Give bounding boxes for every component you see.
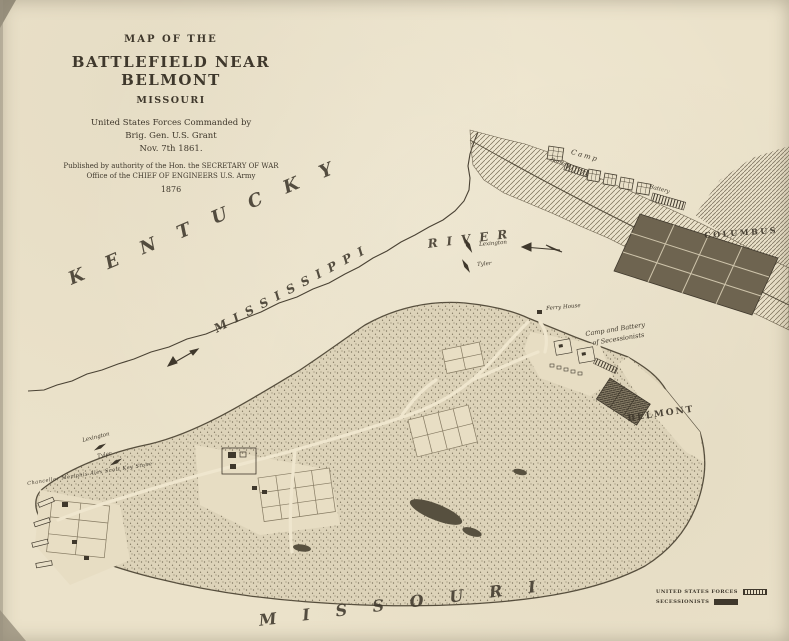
legend-row-cs: SECESSIONISTS: [656, 599, 767, 605]
legend-cs-label: SECESSIONISTS: [656, 599, 709, 605]
legend-cs-bar-icon: [714, 599, 738, 605]
map-state: MISSOURI: [28, 95, 314, 106]
map-title: BATTLEFIELD NEAR BELMONT: [28, 53, 314, 89]
legend-row-us: UNITED STATES FORCES: [656, 589, 767, 595]
map-canvas: MAP OF THE BATTLEFIELD NEAR BELMONT MISS…: [0, 0, 789, 641]
legend-us-bar-icon: [743, 589, 767, 595]
map-imprint-office: Office of the CHIEF OF ENGINEERS U.S. Ar…: [28, 172, 314, 180]
ferry-house-icon: [537, 310, 542, 314]
legend: UNITED STATES FORCES SECESSIONISTS: [656, 589, 767, 609]
map-subtitle-date: Nov. 7th 1861.: [28, 144, 314, 154]
missouri-peninsula-woods: [36, 302, 705, 605]
plate-edge-marks: [0, 0, 26, 641]
title-block: MAP OF THE BATTLEFIELD NEAR BELMONT MISS…: [28, 34, 314, 194]
map-kicker: MAP OF THE: [28, 34, 314, 45]
map-imprint-authority: Published by authority of the Hon. the S…: [28, 162, 314, 170]
map-subtitle-commander: Brig. Gen. U.S. Grant: [28, 131, 314, 141]
current-arrow-upper: [522, 243, 562, 252]
map-subtitle-forces: United States Forces Commanded by: [28, 118, 314, 128]
current-arrow-lower: [168, 349, 198, 366]
legend-us-label: UNITED STATES FORCES: [656, 589, 738, 595]
